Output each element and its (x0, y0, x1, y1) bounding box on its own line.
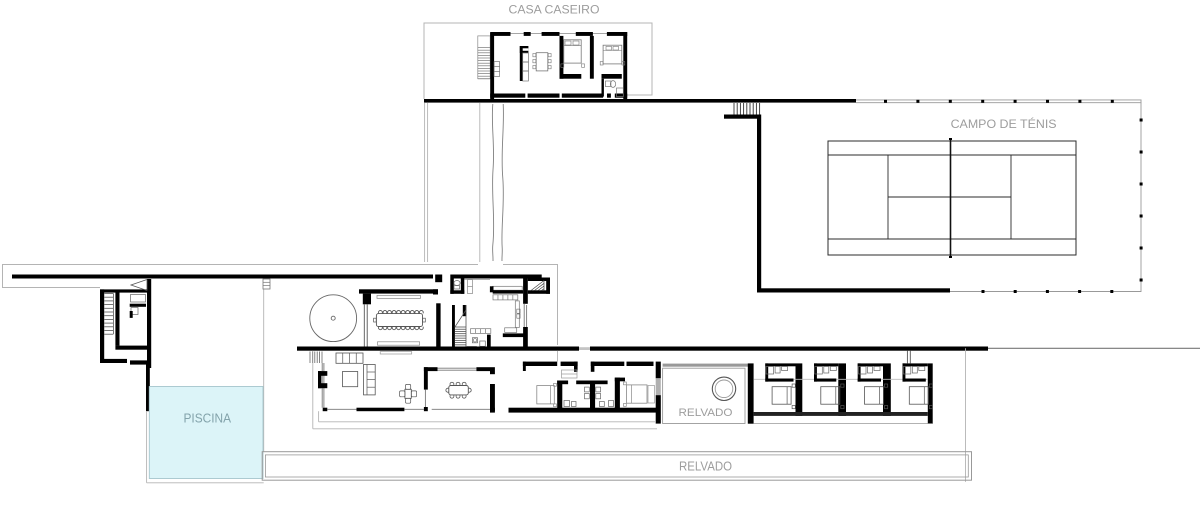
svg-text:RELVADO: RELVADO (679, 407, 733, 419)
svg-text:CAMPO DE TÉNIS: CAMPO DE TÉNIS (951, 116, 1057, 131)
svg-text:RELVADO: RELVADO (679, 459, 732, 474)
svg-text:CASA CASEIRO: CASA CASEIRO (509, 3, 600, 17)
svg-text:PISCINA: PISCINA (184, 411, 232, 425)
